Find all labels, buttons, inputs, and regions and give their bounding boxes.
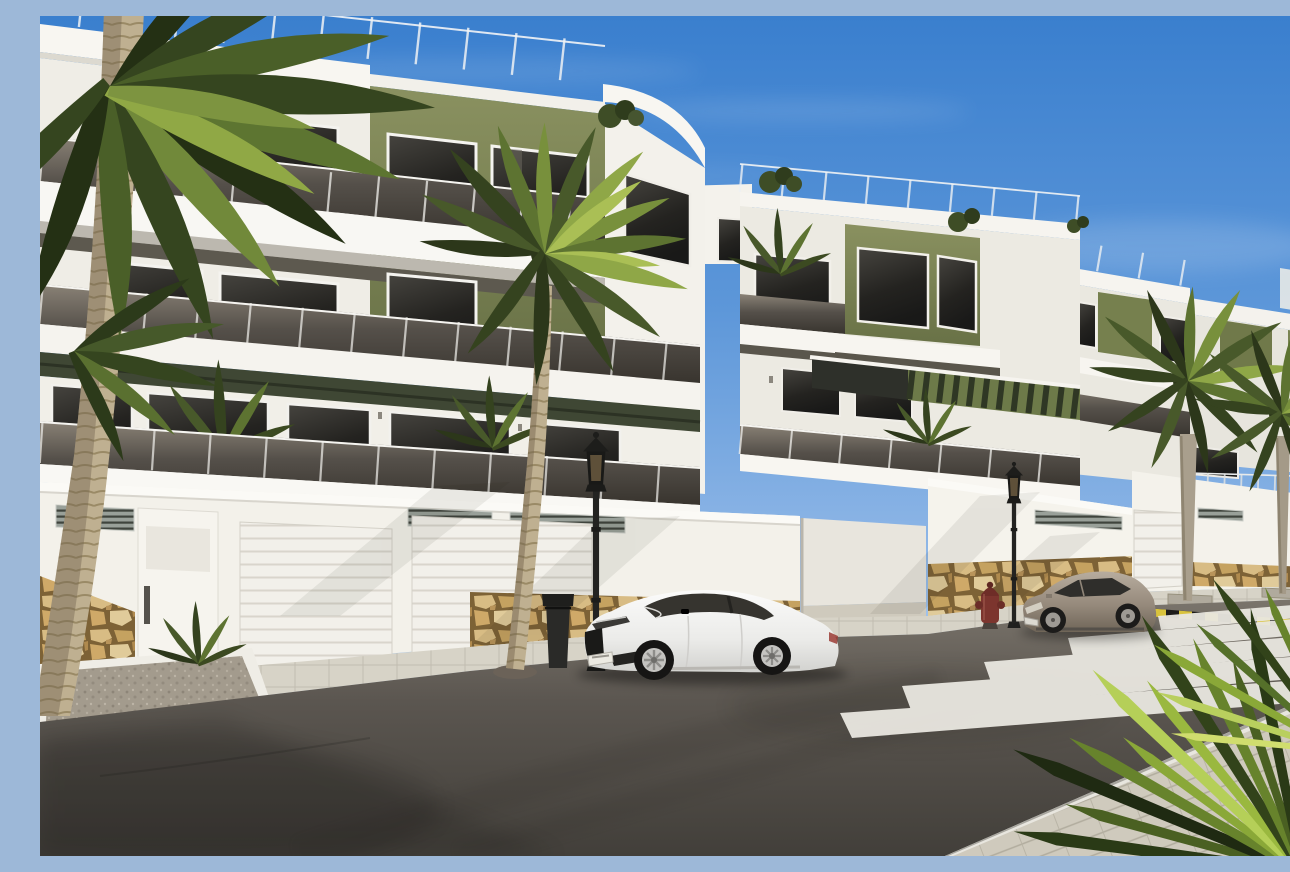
- door-panel: [146, 526, 210, 572]
- wall-light: [518, 424, 522, 431]
- window: [1078, 302, 1096, 348]
- car-wheel-front: [1040, 607, 1066, 633]
- wall-light: [378, 412, 382, 419]
- scene-root: [40, 16, 1290, 856]
- car-wheel-rear: [753, 637, 791, 675]
- wall-light: [769, 376, 773, 383]
- door-handle: [144, 586, 150, 624]
- window: [938, 256, 976, 332]
- car-wheel-rear: [1116, 604, 1141, 629]
- mirror: [681, 609, 689, 614]
- car-wheel-front: [634, 640, 674, 680]
- render-image: [40, 16, 1290, 856]
- stone-base: [1190, 562, 1290, 588]
- window: [858, 248, 928, 328]
- garage-door-3: [1134, 510, 1182, 589]
- mirror: [1046, 594, 1052, 598]
